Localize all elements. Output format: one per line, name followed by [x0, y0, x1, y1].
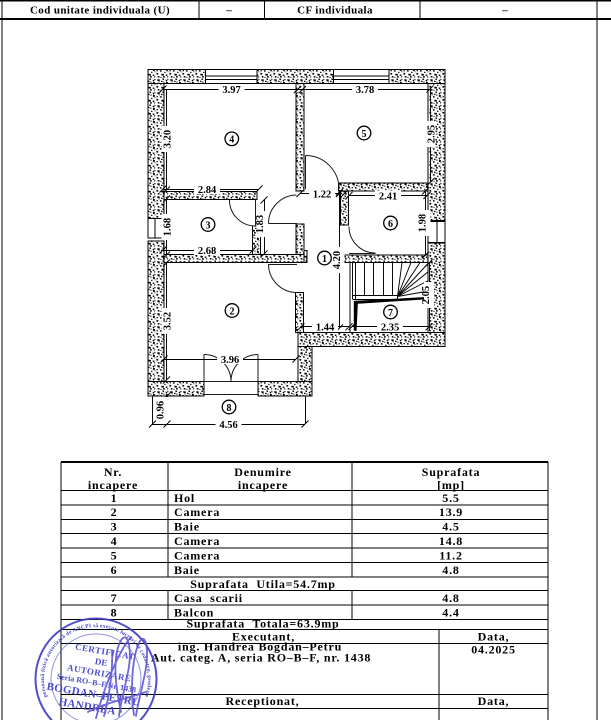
svg-text:8: 8: [111, 606, 118, 620]
svg-text:Suprafata Totala=63.9mp: Suprafata Totala=63.9mp: [186, 616, 339, 630]
svg-text:Suprafata: Suprafata: [422, 465, 481, 479]
svg-text:Camera: Camera: [174, 534, 220, 548]
svg-text:Suprafata Utila=54.7mp: Suprafata Utila=54.7mp: [190, 577, 336, 591]
svg-text:2.95: 2.95: [426, 125, 437, 143]
svg-text:2: 2: [230, 306, 235, 317]
svg-text:Casa scarii: Casa scarii: [174, 591, 243, 605]
svg-text:4: 4: [111, 534, 118, 548]
svg-text:3.97: 3.97: [222, 85, 240, 96]
svg-text:Camera: Camera: [174, 505, 220, 519]
svg-text:4.8: 4.8: [442, 591, 459, 605]
svg-text:6: 6: [388, 219, 393, 230]
svg-text:2.35: 2.35: [381, 323, 399, 334]
svg-text:4: 4: [229, 135, 234, 146]
svg-text:3: 3: [206, 220, 211, 231]
svg-text:Camera: Camera: [174, 548, 220, 562]
svg-text:1.22: 1.22: [313, 189, 331, 200]
svg-text:incapere: incapere: [238, 478, 288, 492]
svg-text:Data,: Data,: [478, 694, 510, 708]
svg-text:3.20: 3.20: [162, 130, 173, 148]
svg-text:7: 7: [111, 591, 118, 605]
svg-text:Baie: Baie: [174, 520, 200, 534]
svg-text:Cod unitate individuala (U): Cod unitate individuala (U): [30, 5, 170, 17]
svg-text:3.52: 3.52: [162, 312, 173, 330]
svg-text:Nr.: Nr.: [104, 465, 122, 479]
svg-text:4.8: 4.8: [442, 563, 459, 577]
svg-text:1.68: 1.68: [162, 218, 173, 236]
svg-text:2.05: 2.05: [421, 286, 432, 304]
svg-text:11.2: 11.2: [439, 548, 463, 562]
svg-text:Aut. categ. A, seria RO–B–F, n: Aut. categ. A, seria RO–B–F, nr. 1438: [151, 651, 371, 665]
svg-text:–: –: [225, 5, 232, 17]
svg-text:2.41: 2.41: [379, 191, 397, 202]
svg-text:5: 5: [111, 548, 118, 562]
svg-text:14.8: 14.8: [439, 534, 463, 548]
svg-text:3.78: 3.78: [356, 85, 374, 96]
svg-text:04.2025: 04.2025: [471, 643, 516, 657]
svg-text:4.56: 4.56: [219, 420, 237, 431]
svg-text:13.9: 13.9: [439, 505, 463, 519]
svg-text:1: 1: [322, 254, 327, 265]
svg-text:2.84: 2.84: [198, 185, 217, 196]
svg-text:8: 8: [227, 403, 232, 414]
svg-text:Receptionat,: Receptionat,: [226, 694, 300, 708]
svg-text:1: 1: [111, 491, 118, 505]
svg-text:1.44: 1.44: [316, 323, 335, 334]
svg-text:5: 5: [362, 129, 367, 140]
svg-text:6: 6: [111, 563, 118, 577]
svg-text:7: 7: [388, 308, 393, 319]
svg-text:3.96: 3.96: [221, 355, 239, 366]
svg-text:2.68: 2.68: [198, 246, 216, 257]
svg-text:3: 3: [111, 520, 118, 534]
svg-text:4.20: 4.20: [332, 251, 343, 269]
svg-text:5.5: 5.5: [442, 491, 459, 505]
svg-text:2: 2: [111, 505, 118, 519]
svg-text:1.98: 1.98: [417, 214, 428, 232]
svg-text:0.96: 0.96: [156, 401, 167, 419]
svg-text:CF individuala: CF individuala: [297, 5, 373, 17]
svg-text:4.5: 4.5: [442, 520, 459, 534]
svg-text:DE: DE: [94, 656, 108, 668]
svg-text:1.83: 1.83: [255, 215, 266, 233]
svg-text:Denumire: Denumire: [234, 465, 292, 479]
svg-text:Hol: Hol: [174, 491, 195, 505]
svg-text:4.4: 4.4: [442, 606, 459, 620]
svg-text:Baie: Baie: [174, 563, 200, 577]
svg-text:–: –: [501, 5, 508, 17]
svg-text:Data,: Data,: [478, 629, 510, 643]
